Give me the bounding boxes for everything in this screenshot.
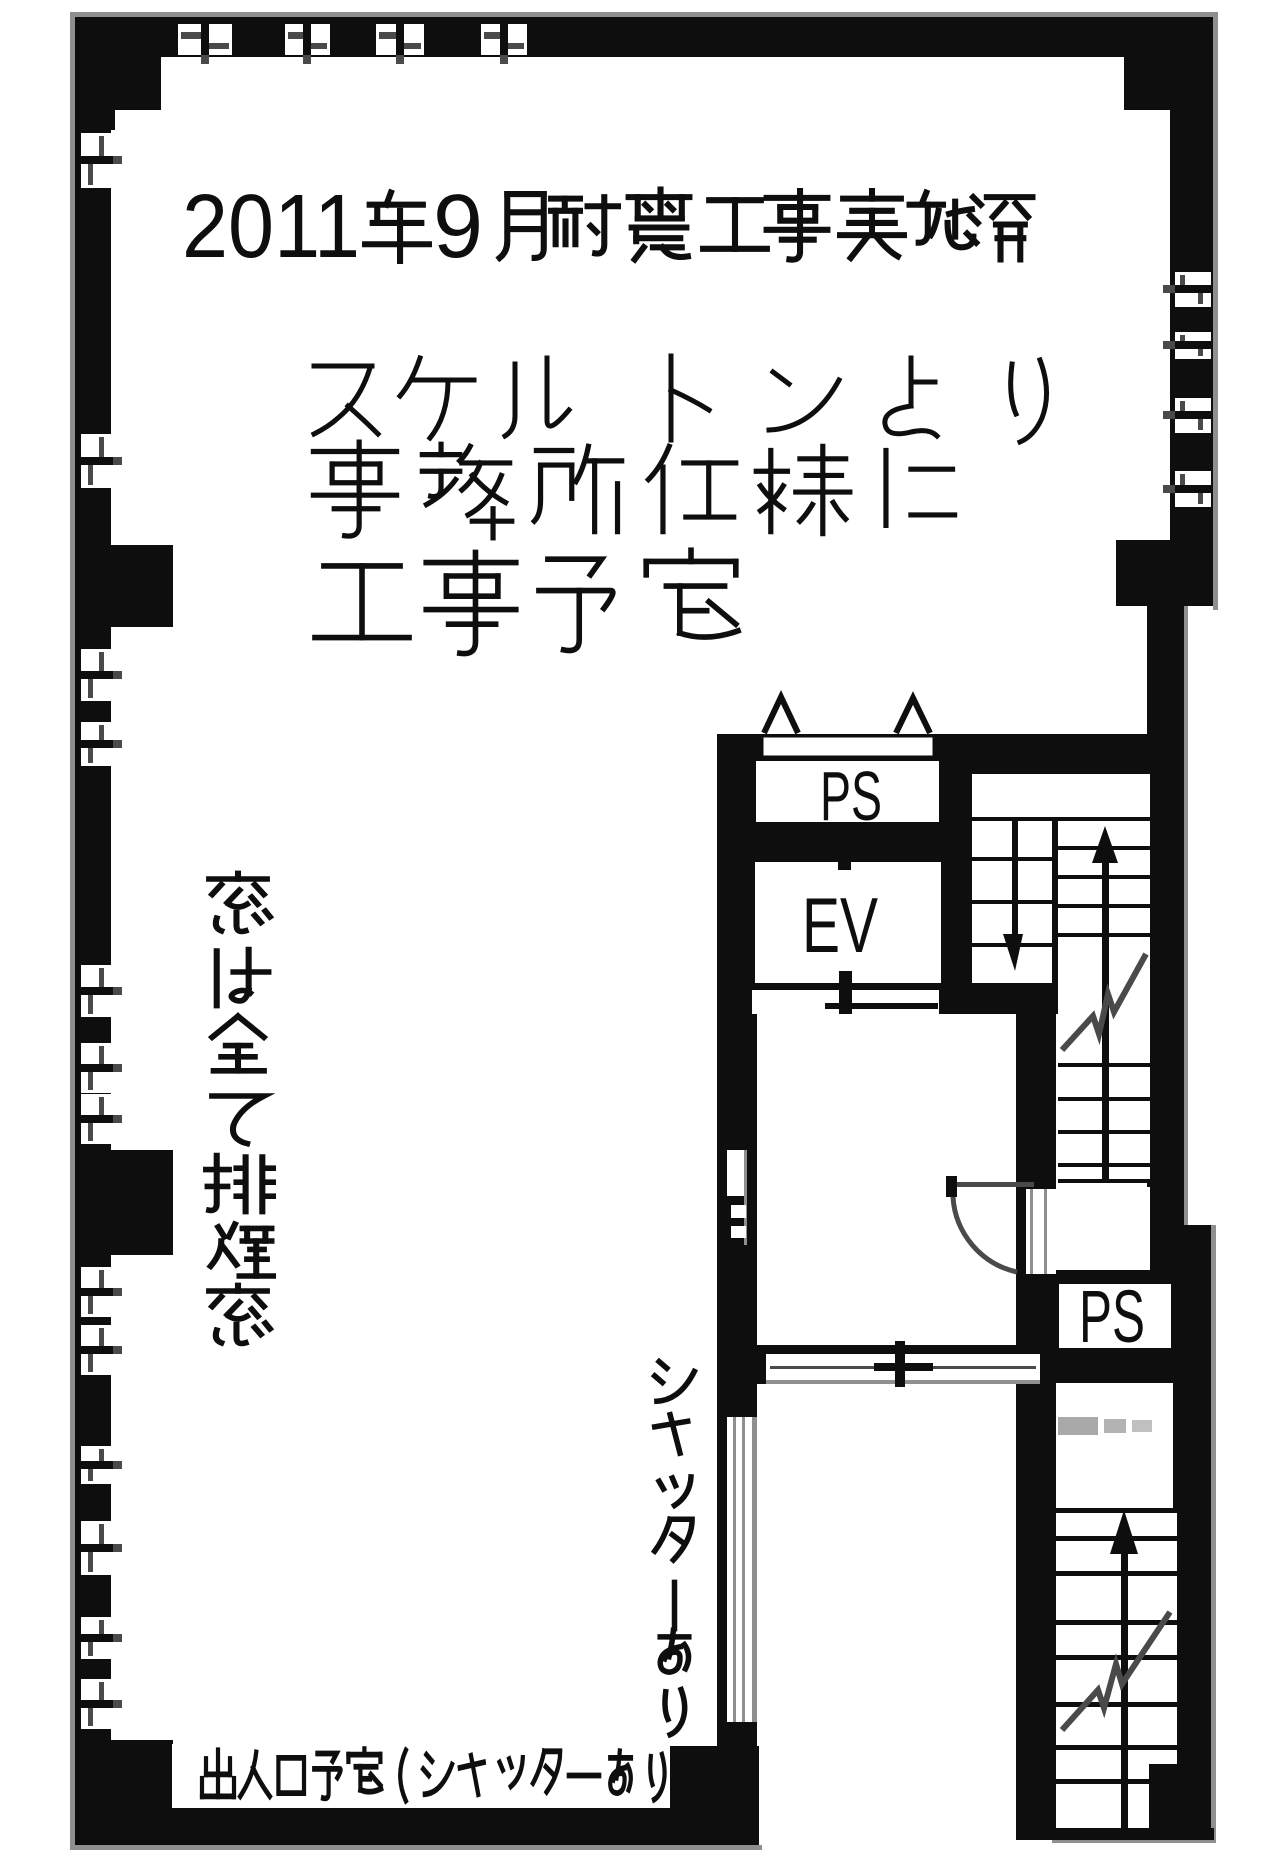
svg-text:9: 9 [433, 177, 483, 277]
svg-text:EV: EV [802, 881, 878, 969]
svg-text:2011: 2011 [182, 177, 360, 277]
svg-text:PS: PS [820, 757, 882, 835]
svg-text:PS: PS [1079, 1275, 1145, 1358]
